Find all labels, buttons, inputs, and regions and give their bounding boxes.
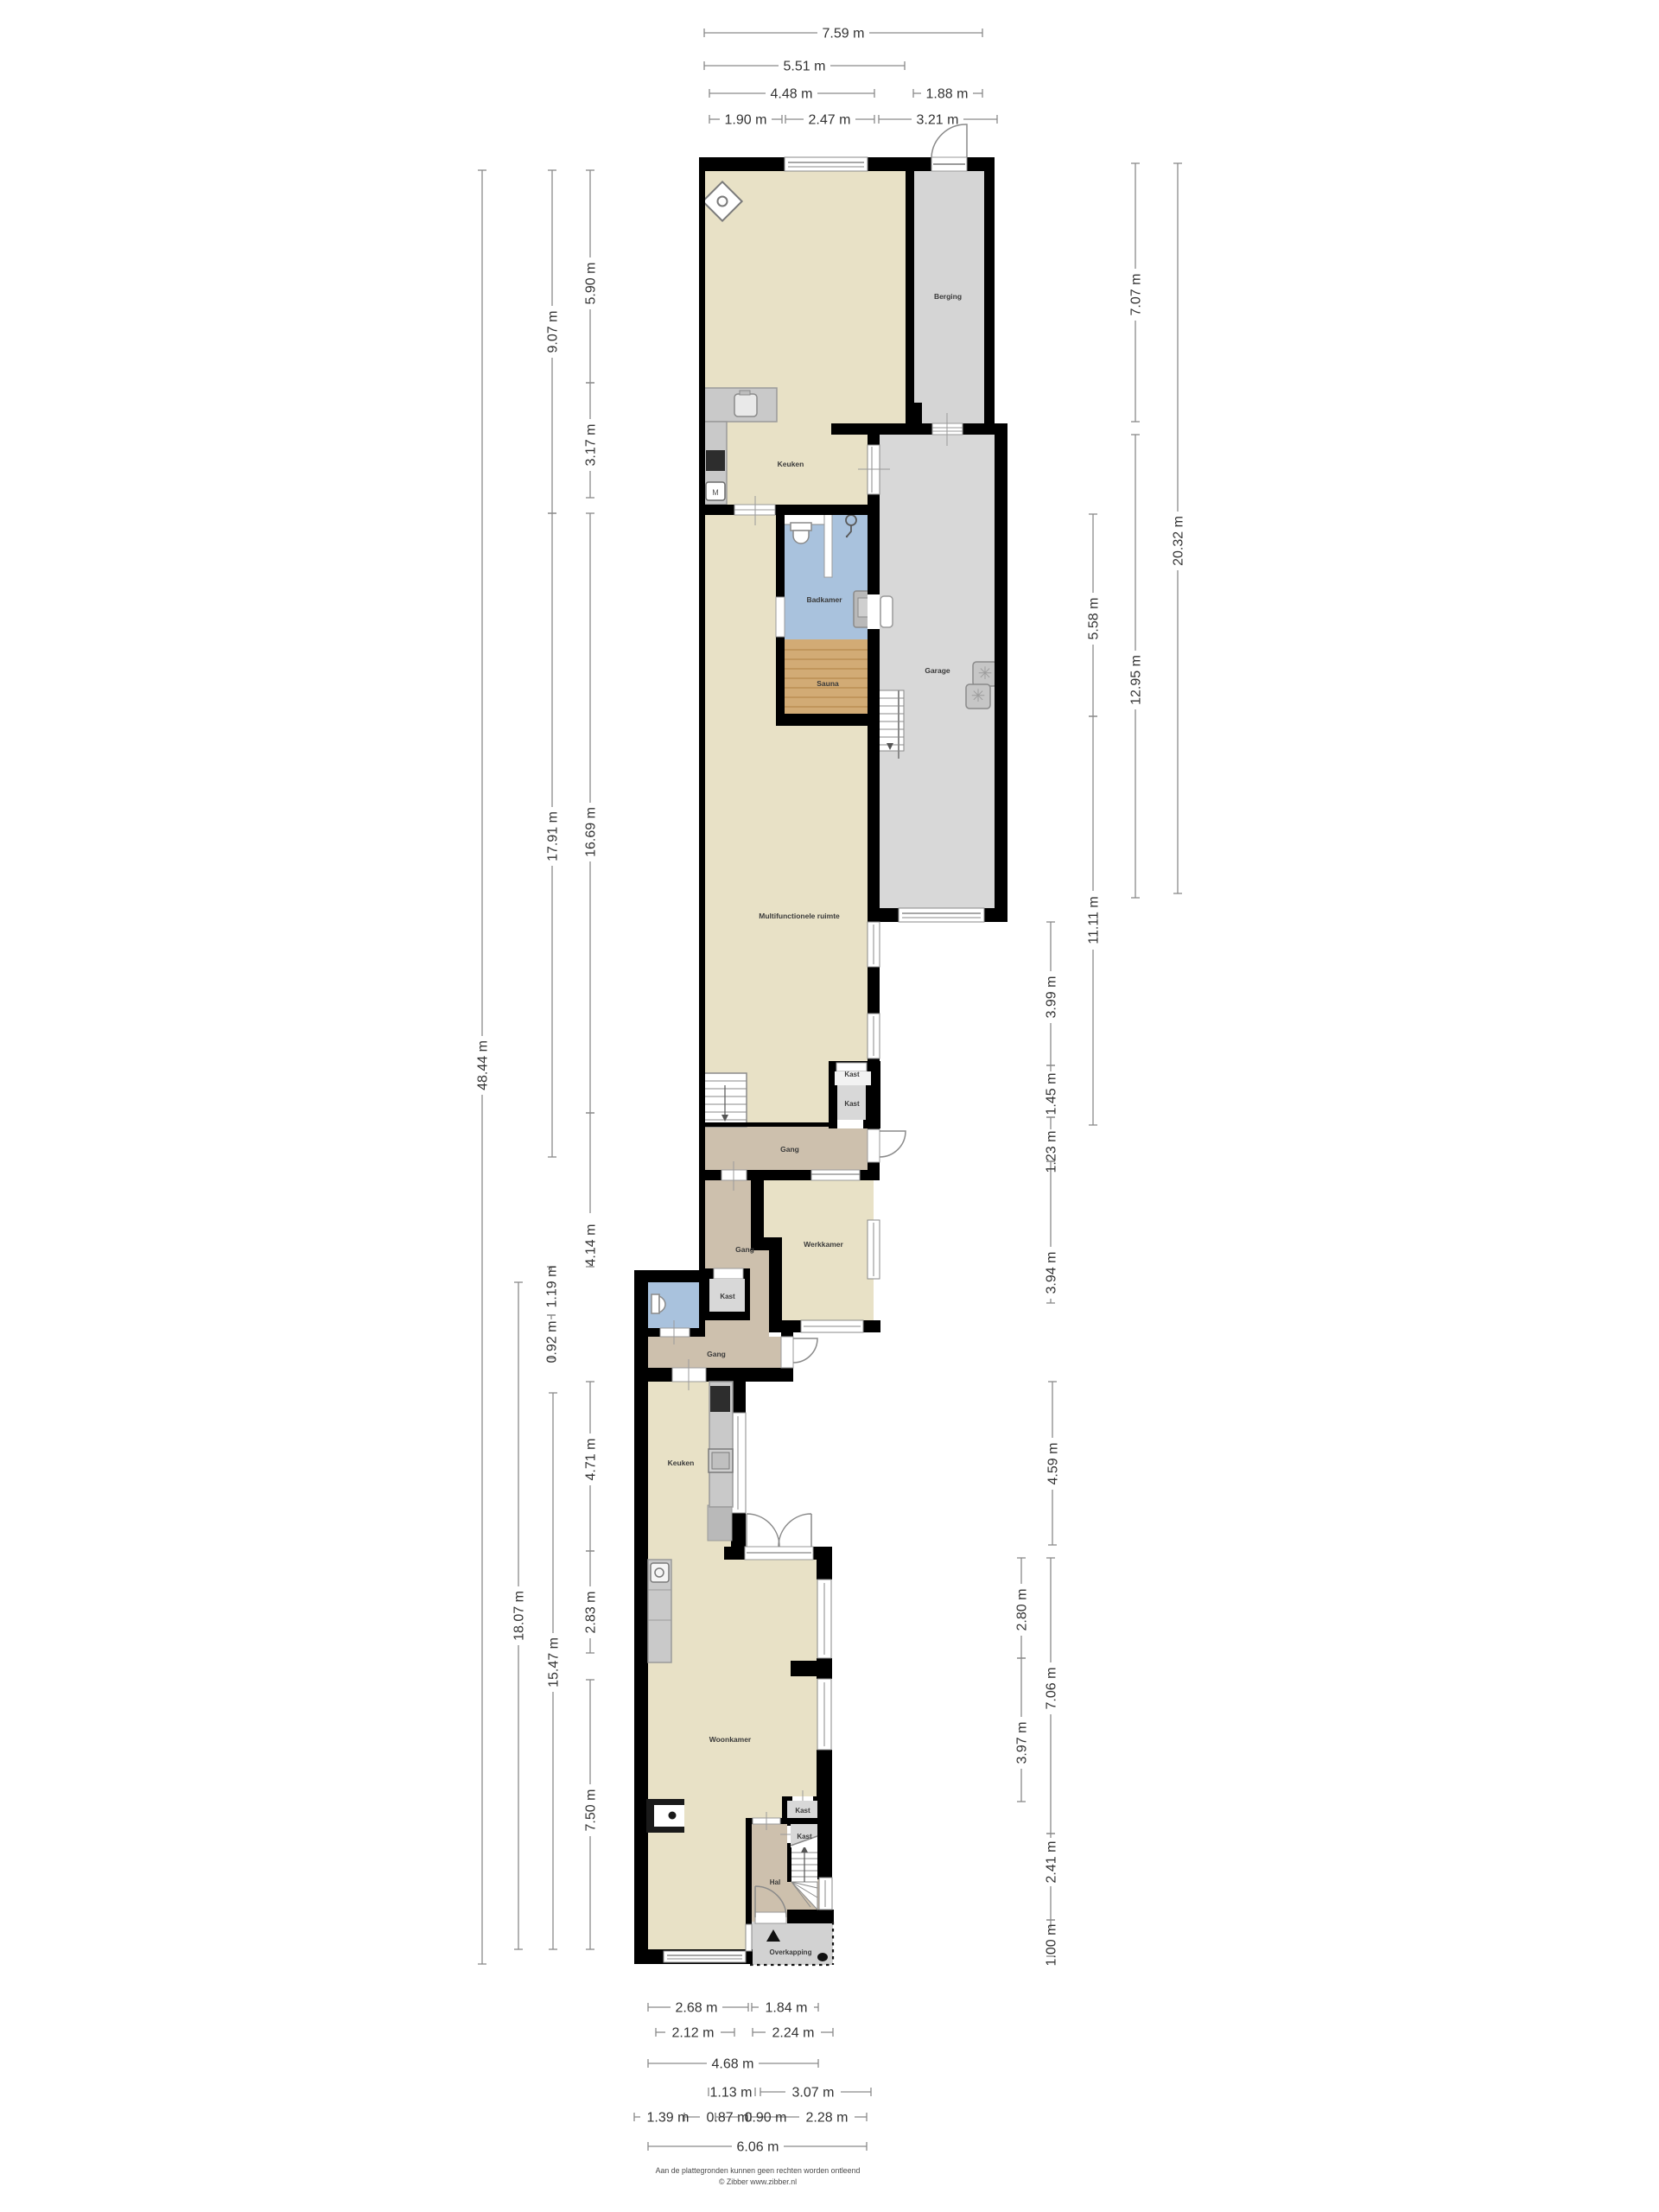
svg-text:4.48 m: 4.48 m — [771, 87, 813, 102]
svg-text:7.59 m: 7.59 m — [823, 27, 865, 41]
svg-text:Hal: Hal — [770, 1878, 780, 1886]
svg-text:Gang: Gang — [780, 1145, 799, 1154]
svg-text:0.90 m: 0.90 m — [745, 2111, 787, 2126]
svg-text:17.91 m: 17.91 m — [546, 811, 561, 861]
svg-text:4.71 m: 4.71 m — [584, 1439, 599, 1481]
svg-text:Kast: Kast — [720, 1293, 735, 1300]
svg-text:2.12 m: 2.12 m — [672, 2026, 715, 2041]
svg-text:16.69 m: 16.69 m — [584, 807, 599, 857]
svg-text:1.00 m: 1.00 m — [1045, 1924, 1059, 1967]
svg-text:2.80 m: 2.80 m — [1015, 1589, 1030, 1631]
svg-text:M: M — [712, 488, 719, 497]
svg-text:Overkapping: Overkapping — [770, 1948, 812, 1956]
svg-text:Berging: Berging — [934, 292, 962, 301]
svg-text:2.68 m: 2.68 m — [676, 2001, 718, 2016]
svg-text:© Zibber www.zibber.nl: © Zibber www.zibber.nl — [719, 2177, 797, 2186]
svg-text:9.07 m: 9.07 m — [546, 311, 561, 353]
svg-text:1.90 m: 1.90 m — [725, 113, 767, 128]
svg-text:7.06 m: 7.06 m — [1045, 1668, 1059, 1710]
svg-text:2.47 m: 2.47 m — [809, 113, 851, 128]
svg-text:Gang: Gang — [707, 1350, 726, 1358]
svg-text:11.11 m: 11.11 m — [1087, 896, 1102, 944]
svg-text:3.94 m: 3.94 m — [1045, 1252, 1059, 1294]
svg-text:1.39 m: 1.39 m — [647, 2111, 690, 2126]
svg-text:3.21 m: 3.21 m — [917, 113, 959, 128]
svg-text:4.14 m: 4.14 m — [584, 1224, 599, 1267]
svg-text:5.51 m: 5.51 m — [784, 60, 826, 74]
svg-text:3.99 m: 3.99 m — [1045, 976, 1059, 1019]
svg-text:6.06 m: 6.06 m — [737, 2140, 779, 2155]
svg-text:48.44 m: 48.44 m — [476, 1040, 491, 1090]
svg-text:2.28 m: 2.28 m — [806, 2111, 849, 2126]
svg-text:Multifunctionele ruimte: Multifunctionele ruimte — [759, 912, 840, 920]
svg-text:5.58 m: 5.58 m — [1087, 598, 1102, 640]
svg-text:Garage: Garage — [925, 666, 950, 675]
svg-text:7.07 m: 7.07 m — [1129, 274, 1144, 316]
svg-text:Sauna: Sauna — [817, 679, 839, 688]
svg-text:Aan de plattegronden kunnen ge: Aan de plattegronden kunnen geen rechten… — [656, 2166, 861, 2175]
svg-text:3.97 m: 3.97 m — [1015, 1722, 1030, 1764]
svg-text:✳: ✳ — [971, 687, 986, 706]
svg-text:3.07 m: 3.07 m — [792, 2086, 835, 2101]
svg-text:0.87 m: 0.87 m — [707, 2111, 749, 2126]
svg-text:7.50 m: 7.50 m — [584, 1789, 599, 1832]
svg-text:Gang: Gang — [735, 1245, 754, 1254]
svg-text:5.90 m: 5.90 m — [584, 263, 599, 305]
svg-text:4.59 m: 4.59 m — [1046, 1443, 1061, 1485]
svg-text:1.45 m: 1.45 m — [1045, 1073, 1059, 1116]
svg-text:2.41 m: 2.41 m — [1045, 1841, 1059, 1884]
svg-text:Kast: Kast — [797, 1833, 812, 1840]
svg-text:3.17 m: 3.17 m — [584, 424, 599, 467]
svg-text:Werkkamer: Werkkamer — [804, 1240, 843, 1249]
svg-text:Kast: Kast — [844, 1071, 860, 1078]
svg-text:0.92 m: 0.92 m — [545, 1321, 560, 1363]
svg-text:Keuken: Keuken — [668, 1459, 695, 1467]
svg-text:Keuken: Keuken — [778, 460, 804, 468]
svg-text:Kast: Kast — [795, 1807, 810, 1815]
svg-text:12.95 m: 12.95 m — [1129, 655, 1144, 705]
svg-text:Kast: Kast — [844, 1100, 860, 1108]
svg-text:✳: ✳ — [978, 664, 993, 683]
svg-text:2.24 m: 2.24 m — [772, 2026, 815, 2041]
svg-text:4.68 m: 4.68 m — [712, 2057, 754, 2072]
svg-text:1.13 m: 1.13 m — [710, 2086, 753, 2101]
svg-text:1.84 m: 1.84 m — [766, 2001, 808, 2016]
svg-text:Woonkamer: Woonkamer — [709, 1735, 752, 1744]
svg-text:15.47 m: 15.47 m — [547, 1637, 562, 1688]
svg-text:1.23 m: 1.23 m — [1045, 1131, 1059, 1173]
svg-text:Badkamer: Badkamer — [806, 595, 842, 604]
svg-text:18.07 m: 18.07 m — [512, 1591, 527, 1641]
svg-text:1.88 m: 1.88 m — [926, 87, 969, 102]
svg-text:20.32 m: 20.32 m — [1172, 516, 1186, 566]
svg-text:2.83 m: 2.83 m — [584, 1592, 599, 1634]
svg-text:1.19 m: 1.19 m — [545, 1266, 560, 1308]
